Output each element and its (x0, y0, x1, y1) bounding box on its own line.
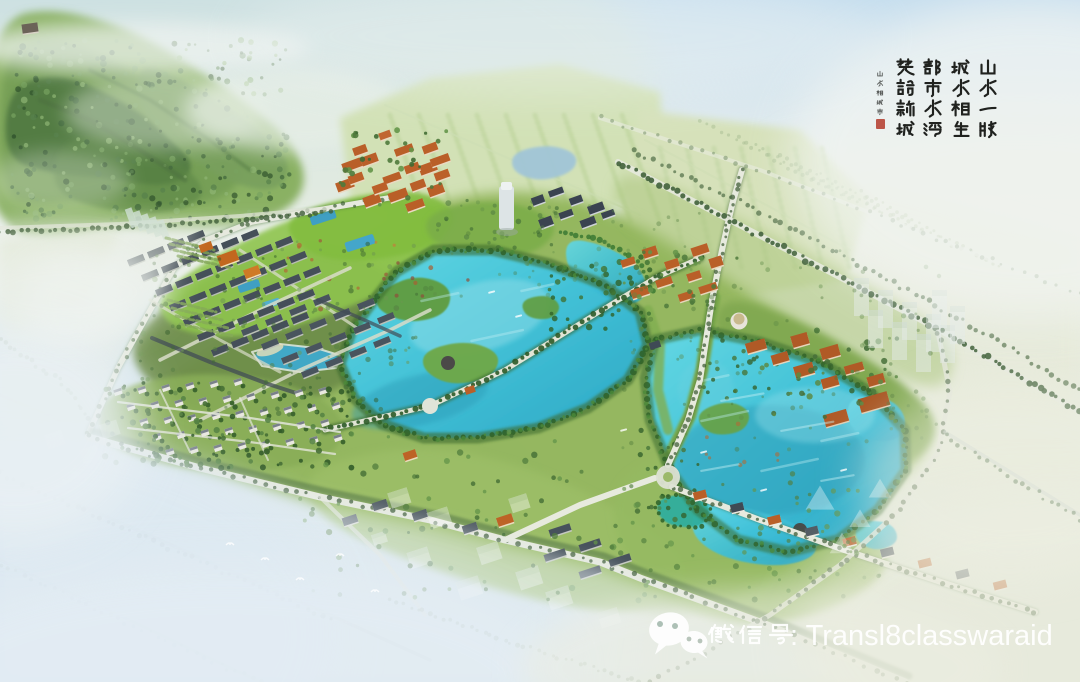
svg-text:: Transl8classwaraid: : Transl8classwaraid (790, 620, 1053, 652)
